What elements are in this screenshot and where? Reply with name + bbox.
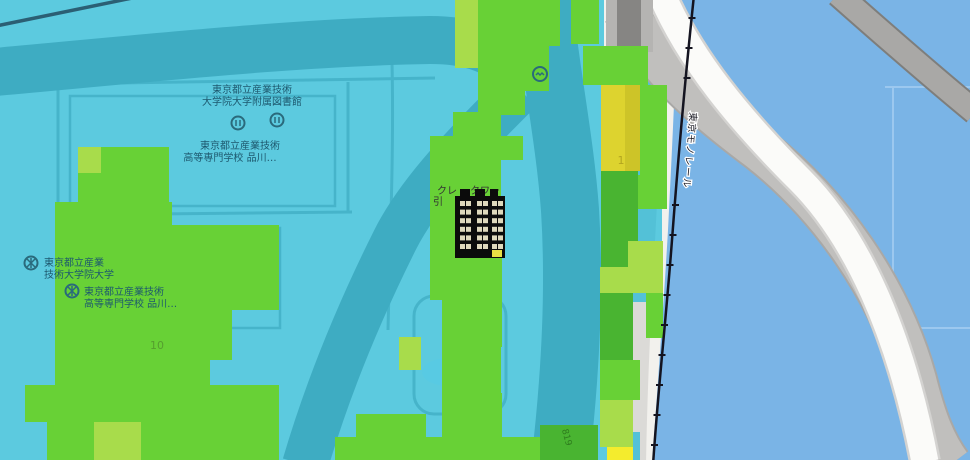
overlay-cell: [522, 437, 540, 460]
overlay-cell: [356, 414, 426, 437]
overlay-cell: [600, 360, 640, 400]
label-kosen-south-2: 高等専門学校 品川…: [84, 297, 177, 310]
building-window: [483, 201, 488, 206]
label-library-2: 大学院大学附属図書館: [202, 95, 302, 108]
building-label-left: クレ: [437, 185, 457, 197]
building-window: [498, 210, 503, 215]
building-window: [466, 210, 471, 215]
building-window: [498, 244, 503, 249]
building-window: [477, 227, 482, 232]
building-window: [460, 201, 465, 206]
building-window: [498, 235, 503, 240]
building-window: [460, 218, 465, 223]
building-window: [492, 210, 497, 215]
overlay-cell: [453, 112, 501, 158]
overlay-cell: [172, 360, 210, 385]
building-icon: [455, 189, 505, 258]
overlay-cell: [600, 267, 628, 293]
overlay-cell: [628, 241, 663, 293]
overlay-cell: [455, 0, 478, 68]
map-viewport[interactable]: 10 1 819 東京モノレール 東京都立産業技術 大学: [0, 0, 970, 460]
overlay-cell: [399, 337, 421, 370]
overlay-cell: [442, 300, 502, 347]
building-window: [460, 235, 465, 240]
building-window: [466, 218, 471, 223]
building-label-2: 引: [433, 196, 443, 208]
building-window: [466, 227, 471, 232]
overlay-cell: [478, 46, 525, 115]
overlay-cell: [25, 385, 55, 422]
building-window: [483, 235, 488, 240]
overlay-cell: [172, 310, 232, 360]
overlay-cell: [607, 447, 633, 460]
overlay-cell: [600, 400, 633, 447]
building-window: [492, 201, 497, 206]
cell-value-10: 10: [150, 339, 164, 352]
overlay-cell: [571, 0, 599, 44]
map-canvas[interactable]: 10 1 819 東京モノレール 東京都立産業技術 大学: [0, 0, 970, 460]
building-window: [477, 218, 482, 223]
building-window: [460, 210, 465, 215]
building-window: [477, 235, 482, 240]
overlay-cell: [55, 202, 172, 460]
overlay-cell: [625, 85, 640, 171]
building-window: [466, 244, 471, 249]
label-library-1: 東京都立産業技術: [212, 83, 292, 96]
overlay-cell: [638, 175, 667, 209]
building-window: [483, 244, 488, 249]
building-window: [498, 227, 503, 232]
overlay-cell: [600, 293, 633, 360]
building-window: [477, 210, 482, 215]
building-window: [492, 227, 497, 232]
overlay-cell: [172, 385, 279, 460]
label-kosen-north-1: 東京都立産業技術: [200, 139, 280, 152]
overlay-cell: [47, 422, 55, 460]
overlay-cell: [94, 422, 141, 460]
building-window: [498, 218, 503, 223]
building-window: [466, 201, 471, 206]
overlay-cell: [78, 173, 169, 202]
building-window: [492, 218, 497, 223]
building-window: [483, 218, 488, 223]
overlay-cell: [442, 347, 501, 393]
overlay-cell: [101, 147, 169, 173]
label-kosen-north-2: 高等専門学校 品川…: [183, 151, 276, 164]
building-window: [492, 244, 497, 249]
label-aiit-2: 技術大学院大学: [44, 268, 114, 281]
building-window: [477, 201, 482, 206]
building-window: [492, 235, 497, 240]
overlay-cell: [478, 0, 560, 46]
building-window: [477, 244, 482, 249]
overlay-cell: [442, 393, 502, 437]
overlay-cell: [78, 147, 101, 173]
building-window: [483, 227, 488, 232]
overlay-cell: [583, 46, 648, 85]
building-window: [483, 210, 488, 215]
building-window: [498, 201, 503, 206]
cell-value-1: 1: [618, 154, 625, 167]
building-window: [460, 227, 465, 232]
overlay-cell: [501, 136, 523, 160]
building-window: [460, 244, 465, 249]
overlay-cell: [646, 293, 663, 338]
building-window: [466, 235, 471, 240]
overlay-cell: [640, 85, 667, 175]
overlay-cell: [172, 225, 279, 310]
label-kosen-south-1: 東京都立産業技術: [84, 285, 164, 298]
label-aiit-1: 東京都立産業: [44, 256, 104, 269]
overlay-cell: [335, 437, 522, 460]
